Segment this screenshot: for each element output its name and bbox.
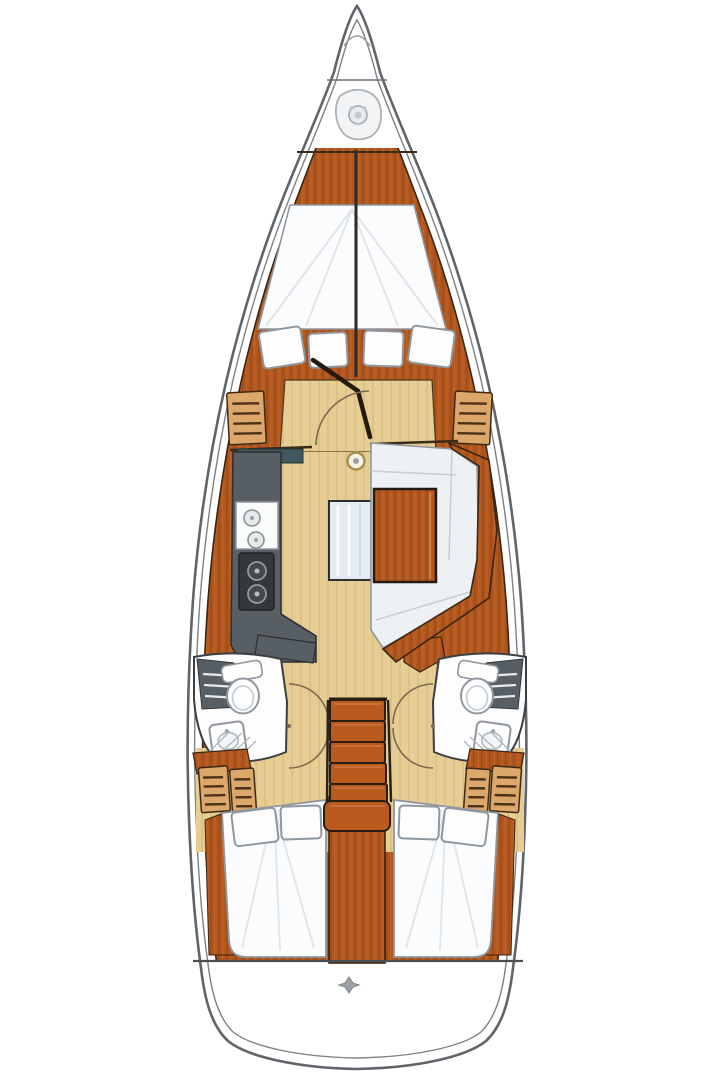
step-tread [330,742,385,763]
aft-berth-port [205,800,326,957]
sailboat-floor-plan [0,0,719,1080]
toilet-icon [227,679,259,714]
salon-table [374,489,436,582]
aft-berth-starboard [394,800,515,957]
pillow [231,807,279,846]
mast-step-icon [348,453,365,470]
pillow [258,326,305,369]
step-tread [330,763,386,784]
head-port [194,653,287,765]
head-starboard [433,653,526,765]
step-tread [330,721,385,742]
companionway-steps [324,699,391,831]
nav-bench [329,501,372,580]
pillow [408,325,456,368]
v-berth-mattress [258,205,446,329]
pillow [363,330,403,366]
anchor-windlass-icon [336,90,381,140]
forward-locker-port [227,391,267,445]
step-tread [330,700,385,721]
forward-locker-starboard [453,391,493,445]
boat-floor-plan-page [0,0,719,1080]
pillow [280,805,321,839]
